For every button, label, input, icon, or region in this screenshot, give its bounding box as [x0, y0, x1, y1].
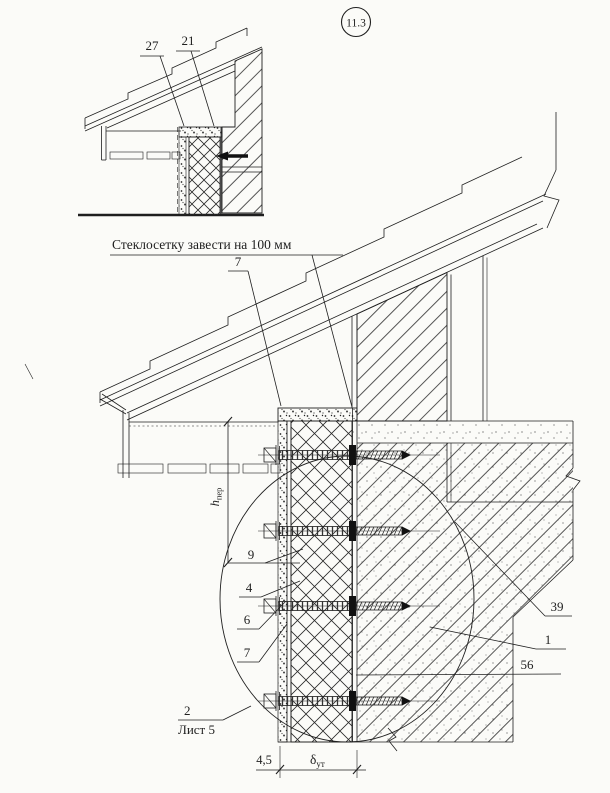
dim-plaster-label: 4,5 [256, 753, 272, 767]
main-soffit [118, 410, 280, 478]
callout-1-label: 1 [545, 632, 552, 647]
detail-drawing: 11.3 [0, 0, 610, 793]
drawing-sheet: 11.3 [0, 0, 610, 793]
belt-band [352, 421, 573, 443]
node-number: 11.3 [346, 18, 366, 30]
margin-tick [25, 364, 33, 379]
callout-21-label: 21 [182, 33, 195, 48]
ref-note-number: 2 [184, 703, 191, 718]
callout-7-top-label: 7 [235, 254, 242, 269]
mini-insulation-column [178, 127, 223, 215]
ref-note-sheet: Лист 5 [178, 722, 215, 737]
dim-bottom: 4,5 δут [256, 746, 366, 778]
callout-7-top: 7 [228, 254, 281, 406]
main-detail: Стеклосетку завести на 100 мм 7 [100, 112, 580, 778]
callout-56-label: 56 [521, 657, 535, 672]
gable-masonry [357, 256, 487, 422]
callout-7-bottom-label: 7 [244, 645, 251, 660]
dim-h-per-label: hпер [208, 488, 224, 507]
mini-detail: 27 21 [78, 28, 264, 215]
ref-note: 2 Лист 5 [178, 703, 251, 737]
mini-masonry-wall [222, 49, 262, 213]
mesh-note: Стеклосетку завести на 100 мм [110, 237, 352, 407]
main-roof [100, 112, 559, 420]
callout-4-label: 4 [246, 580, 253, 595]
mini-soffit [102, 126, 182, 160]
mesh-note-text: Стеклосетку завести на 100 мм [112, 237, 292, 252]
callout-9-label: 9 [248, 547, 255, 562]
callout-21: 21 [176, 33, 214, 126]
node-title-bubble: 11.3 [342, 8, 371, 37]
callout-39-label: 39 [551, 599, 564, 614]
dim-delta-label: δут [310, 752, 325, 769]
callout-6-label: 6 [244, 612, 251, 627]
callout-27-label: 27 [146, 38, 160, 53]
